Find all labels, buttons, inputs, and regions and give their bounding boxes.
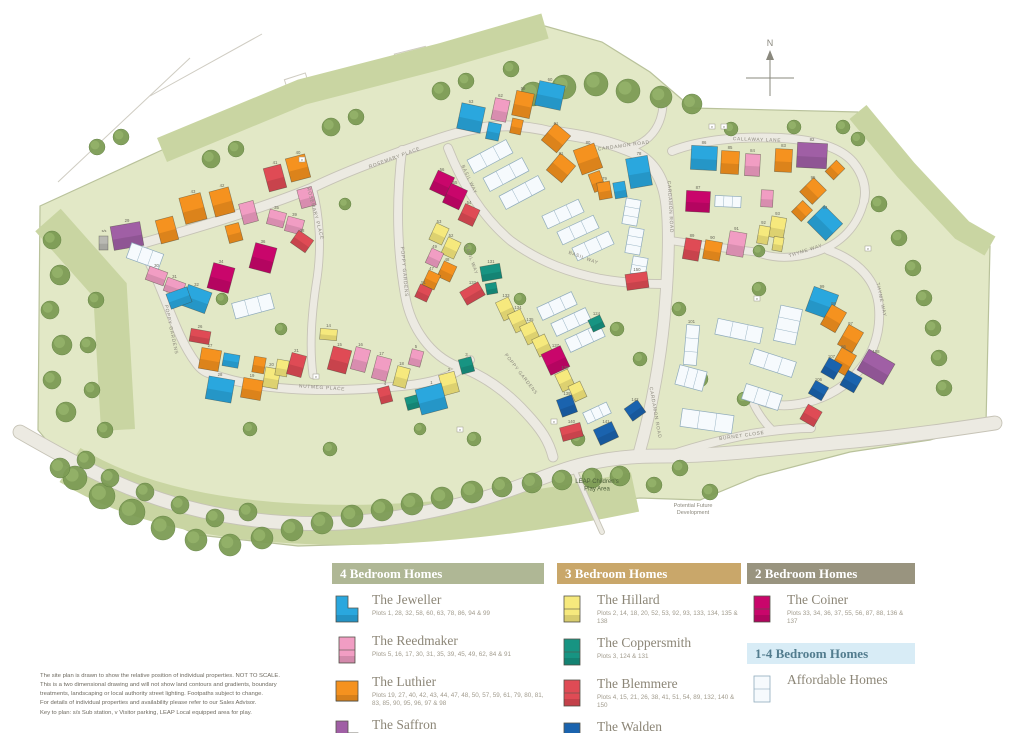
tree — [871, 196, 887, 212]
house-type-swatch — [332, 634, 362, 666]
plot-number: 43 — [191, 189, 196, 194]
tree — [275, 323, 287, 335]
plot-number: 134 — [514, 305, 522, 310]
plot-number: 15 — [337, 342, 342, 347]
house-type-name: The Luthier — [372, 675, 544, 690]
house-plot-86[interactable] — [690, 145, 717, 170]
tree — [88, 292, 104, 308]
plot-number: 32 — [194, 282, 199, 287]
plot-number: 107 — [828, 354, 836, 359]
plot-number: 96 — [841, 344, 846, 349]
legend-item: Affordable Homes — [747, 673, 915, 705]
house-plot[interactable] — [761, 190, 774, 208]
area-label: LEAP Children's — [575, 479, 618, 485]
tree — [281, 519, 303, 541]
plot-number: 89 — [690, 233, 695, 238]
area-label: Potential Future — [674, 503, 713, 509]
plot-number: 101 — [688, 319, 696, 324]
tree — [239, 503, 257, 521]
svg-text:v: v — [711, 125, 713, 129]
disclaimer-line: For details of individual properties and… — [40, 699, 296, 708]
house-type-swatch — [557, 677, 587, 709]
legend-column-2bed: 2 Bedroom HomesThe CoinerPlots 33, 34, 3… — [747, 563, 915, 705]
tree — [171, 496, 189, 514]
house-plot-19[interactable] — [240, 377, 263, 400]
plot-number: 20 — [269, 362, 274, 367]
plot-number: 133 — [502, 293, 510, 298]
house-plot-27[interactable] — [198, 347, 221, 371]
plot-number: 38 — [300, 228, 305, 233]
plot-number: 142 — [631, 397, 639, 402]
plot-number: 91 — [734, 226, 739, 231]
house-plot[interactable] — [485, 282, 498, 295]
plot-number: 81 — [559, 151, 564, 156]
map-mark-v: v — [865, 246, 871, 251]
plot-number: 137 — [552, 343, 560, 348]
tree — [206, 509, 224, 527]
plot-number: 36 — [261, 239, 266, 244]
house-plot[interactable] — [99, 236, 108, 250]
house-type-plots: Plots 3, 124 & 131 — [597, 653, 691, 662]
house-plot-89[interactable] — [682, 238, 701, 261]
plot-number: 93 — [775, 211, 780, 216]
map-mark-v: v — [299, 157, 305, 162]
plot-number: 92 — [761, 220, 766, 225]
disclaimer-line: Key to plan: s/s Sub station, v Visitor … — [40, 709, 296, 718]
compass-label: N — [767, 38, 774, 48]
tree — [401, 493, 423, 515]
plot-number: 56 — [440, 167, 445, 172]
tree — [582, 468, 602, 488]
house-type-name: The Jeweller — [372, 593, 490, 608]
tree — [925, 320, 941, 336]
map-mark-v: v — [551, 419, 557, 424]
plot-number: 79 — [602, 176, 607, 181]
tree — [682, 94, 702, 114]
house-plot-78[interactable] — [626, 155, 653, 188]
house-type-plots: Plots 33, 34, 36, 37, 55, 56, 87, 88, 13… — [787, 610, 915, 627]
map-mark-s-s: s/s — [102, 229, 107, 233]
tree — [514, 293, 526, 305]
house-type-swatch — [332, 675, 362, 707]
plot-number: 78 — [637, 151, 642, 156]
plot-number: 49 — [432, 244, 437, 249]
tree — [672, 460, 688, 476]
plot-number: 53 — [437, 219, 442, 224]
house-type-name: The Coppersmith — [597, 636, 691, 651]
house-plot[interactable] — [252, 356, 267, 374]
tree — [836, 120, 850, 134]
area-label: Development — [677, 510, 710, 516]
tree — [341, 505, 363, 527]
house-type-swatch — [332, 718, 362, 733]
tree — [43, 371, 61, 389]
tree — [185, 529, 207, 551]
house-plot[interactable] — [772, 236, 784, 252]
legend-item: The CoppersmithPlots 3, 124 & 131 — [557, 636, 741, 668]
tree — [503, 61, 519, 77]
house-type-swatch — [557, 636, 587, 668]
house-plot-150[interactable] — [625, 272, 649, 291]
tree — [492, 477, 512, 497]
svg-text:v: v — [723, 125, 725, 129]
plot-number: 86 — [702, 140, 707, 145]
plot-number: 54 — [467, 200, 472, 205]
tree — [216, 293, 228, 305]
plot-number: 138 — [561, 365, 569, 370]
house-type-plots: Plots 5, 16, 17, 30, 31, 35, 39, 45, 49,… — [372, 651, 511, 660]
house-type-name: The Blemmere — [597, 677, 741, 692]
tree — [851, 132, 865, 146]
tree — [339, 198, 351, 210]
legend-header: 3 Bedroom Homes — [557, 563, 741, 584]
plot-number: 80 — [586, 140, 591, 145]
plot-number: 40 — [296, 150, 301, 155]
plot-number: 41 — [273, 160, 278, 165]
plot-number: 42 — [220, 183, 225, 188]
tree — [77, 451, 95, 469]
plot-number: 16 — [358, 342, 363, 347]
legend-column-4bed: 4 Bedroom HomesThe JewellerPlots 1, 28, … — [332, 563, 544, 733]
house-plot-28[interactable] — [205, 376, 235, 403]
house-plot-79[interactable] — [597, 181, 613, 200]
plot-number: 34 — [219, 259, 224, 264]
plot-number: 83 — [781, 143, 786, 148]
tree — [371, 499, 393, 521]
tree — [646, 477, 662, 493]
plot-number: 140 — [568, 419, 576, 424]
svg-text:v: v — [756, 297, 758, 301]
plot-number: 97 — [848, 321, 853, 326]
plot-number: 55 — [453, 180, 458, 185]
plot-number: 131 — [487, 259, 495, 264]
house-plot-93[interactable] — [768, 216, 786, 239]
disclaimer-line: This is a two dimensional drawing and wi… — [40, 681, 296, 690]
house-type-name: The Coiner — [787, 593, 915, 608]
legend-item: The HillardPlots 2, 14, 18, 20, 52, 53, … — [557, 593, 741, 627]
tree — [552, 470, 572, 490]
house-plot[interactable] — [613, 181, 628, 199]
tree — [787, 120, 801, 134]
legend-item: The CoinerPlots 33, 34, 36, 37, 55, 56, … — [747, 593, 915, 627]
svg-text:v: v — [867, 247, 869, 251]
house-type-name: The Walden — [597, 720, 683, 733]
tree — [97, 422, 113, 438]
plot-number: 27 — [208, 343, 213, 348]
disclaimer-line: The site plan is drawn to show the relat… — [40, 672, 296, 681]
plot-number: 61 — [554, 121, 559, 126]
plot-number: 150 — [633, 267, 641, 272]
legend-item: The JewellerPlots 1, 28, 32, 58, 60, 63,… — [332, 593, 544, 625]
tree — [119, 499, 145, 525]
legend-item: The SaffronPlots 29, 46, 82 & 108 — [332, 718, 544, 733]
house-type-swatch — [557, 720, 587, 733]
plot-number: 47 — [429, 266, 434, 271]
legend-header: 1-4 Bedroom Homes — [747, 643, 915, 664]
plot-number: 132 — [469, 280, 477, 285]
plot-number: 84 — [750, 148, 755, 153]
map-mark-v: v — [754, 296, 760, 301]
svg-text:v: v — [301, 158, 303, 162]
site-plan-page: 2943424140303132343635393856555453524948… — [0, 0, 1024, 733]
house-type-plots: Plots 2, 14, 18, 20, 52, 53, 92, 93, 133… — [597, 610, 741, 627]
svg-text:v: v — [553, 420, 555, 424]
plot-number: 85 — [728, 145, 733, 150]
tree — [916, 290, 932, 306]
house-type-swatch — [332, 593, 362, 625]
disclaimer-line: treatments, landscaping or local authori… — [40, 690, 296, 699]
house-plot[interactable] — [222, 353, 240, 369]
plot-number: 35 — [274, 205, 279, 210]
plot-number: 19 — [250, 373, 255, 378]
plot-number: 60 — [548, 77, 553, 82]
plot-number: 95 — [811, 175, 816, 180]
house-plot-131[interactable] — [480, 263, 502, 281]
plot-number: 21 — [294, 348, 299, 353]
tree — [905, 260, 921, 276]
tree — [41, 301, 59, 319]
tree — [672, 302, 686, 316]
tree — [322, 118, 340, 136]
legend-item: The WaldenPlots 106, 107, 139, 141 & 142 — [557, 720, 741, 733]
tree — [219, 534, 241, 556]
map-mark-v: v — [313, 374, 319, 379]
house-plot-60[interactable] — [535, 81, 566, 111]
house-type-swatch — [557, 593, 587, 625]
tree — [753, 245, 765, 257]
tree — [458, 73, 474, 89]
tree — [323, 442, 337, 456]
plot-number: 106 — [815, 377, 823, 382]
map-mark-v: v — [457, 427, 463, 432]
house-plot[interactable] — [715, 195, 742, 207]
house-type-name: The Hillard — [597, 593, 741, 608]
house-type-plots: Plots 1, 28, 32, 58, 60, 63, 78, 86, 94 … — [372, 610, 490, 619]
tree — [243, 422, 257, 436]
house-type-name: The Saffron — [372, 718, 437, 733]
plot-number: 39 — [292, 212, 297, 217]
plot-number: 94 — [823, 205, 828, 210]
tree — [616, 79, 640, 103]
plot-number: 51 — [421, 280, 426, 285]
plot-number: 28 — [218, 372, 223, 377]
plot-number: 135 — [526, 317, 534, 322]
house-type-swatch — [747, 673, 777, 705]
tree — [752, 282, 766, 296]
legend-column-3bed: 3 Bedroom HomesThe HillardPlots 2, 14, 1… — [557, 563, 741, 733]
tree — [931, 350, 947, 366]
house-plot-82[interactable] — [796, 142, 827, 169]
tree — [50, 265, 70, 285]
plot-number: 59 — [521, 86, 526, 91]
map-mark-v: v — [709, 124, 715, 129]
plot-number: 31 — [172, 274, 177, 279]
legend-item: The ReedmakerPlots 5, 16, 17, 30, 31, 35… — [332, 634, 544, 666]
tree — [584, 72, 608, 96]
svg-text:s/s: s/s — [102, 229, 107, 233]
area-label: Play Area — [584, 487, 610, 493]
plot-number: 139 — [563, 391, 571, 396]
legend-item: The BlemmerePlots 4, 15, 21, 26, 38, 41,… — [557, 677, 741, 711]
tree — [650, 86, 672, 108]
tree — [702, 484, 718, 500]
svg-text:v: v — [459, 428, 461, 432]
tree — [50, 458, 70, 478]
plot-number: 62 — [498, 93, 503, 98]
house-plot-85[interactable] — [720, 151, 739, 175]
house-type-plots: Plots 19, 27, 40, 42, 43, 44, 47, 48, 50… — [372, 692, 544, 709]
tree — [202, 150, 220, 168]
map-mark-v: v — [721, 124, 727, 129]
plot-number: 82 — [810, 137, 815, 142]
tree — [80, 337, 96, 353]
tree — [84, 382, 100, 398]
tree — [151, 516, 175, 540]
tree — [522, 473, 542, 493]
tree — [431, 487, 453, 509]
plot-number: 98 — [831, 301, 836, 306]
tree — [414, 423, 426, 435]
legend-header: 2 Bedroom Homes — [747, 563, 915, 584]
plot-number: 48 — [445, 257, 450, 262]
house-plot-90[interactable] — [702, 240, 722, 262]
tree — [113, 129, 129, 145]
plot-number: 63 — [469, 99, 474, 104]
tree — [891, 230, 907, 246]
plot-number: 29 — [125, 218, 130, 223]
house-plot-83[interactable] — [774, 149, 792, 173]
house-plot-87[interactable] — [685, 190, 710, 212]
disclaimer-text: The site plan is drawn to show the relat… — [40, 672, 296, 718]
plot-number: 18 — [399, 361, 404, 366]
tree — [101, 469, 119, 487]
tree — [52, 335, 72, 355]
plot-number: 108 — [872, 349, 880, 354]
tree — [467, 432, 481, 446]
house-type-name: Affordable Homes — [787, 673, 888, 688]
plot-number: 141 — [602, 419, 610, 424]
tree — [348, 109, 364, 125]
plot-number: 26 — [198, 324, 203, 329]
plot-number: 90 — [710, 235, 715, 240]
house-type-swatch — [747, 593, 777, 625]
tree — [461, 481, 483, 503]
plot-number: 17 — [379, 351, 384, 356]
svg-text:v: v — [315, 375, 317, 379]
house-type-plots: Plots 4, 15, 21, 26, 38, 41, 51, 54, 89,… — [597, 694, 741, 711]
plot-number: 30 — [154, 263, 159, 268]
tree — [228, 141, 244, 157]
house-plot-84[interactable] — [744, 154, 760, 177]
tree — [432, 82, 450, 100]
house-plot-63[interactable] — [457, 103, 486, 133]
plot-number: 14 — [326, 323, 331, 328]
tree — [89, 139, 105, 155]
tree — [936, 380, 952, 396]
house-plot-14[interactable] — [320, 328, 338, 340]
tree — [633, 352, 647, 366]
plot-number: 87 — [696, 185, 701, 190]
tree — [136, 483, 154, 501]
house-plot[interactable] — [275, 359, 290, 377]
tree — [43, 231, 61, 249]
legend-header: 4 Bedroom Homes — [332, 563, 544, 584]
tree — [251, 527, 273, 549]
tree — [610, 322, 624, 336]
tree — [311, 512, 333, 534]
plot-number: 52 — [449, 233, 454, 238]
plot-number: 99 — [820, 284, 825, 289]
legend-item: The LuthierPlots 19, 27, 40, 42, 43, 44,… — [332, 675, 544, 709]
house-type-name: The Reedmaker — [372, 634, 511, 649]
tree — [56, 402, 76, 422]
plot-number: 124 — [593, 311, 601, 316]
